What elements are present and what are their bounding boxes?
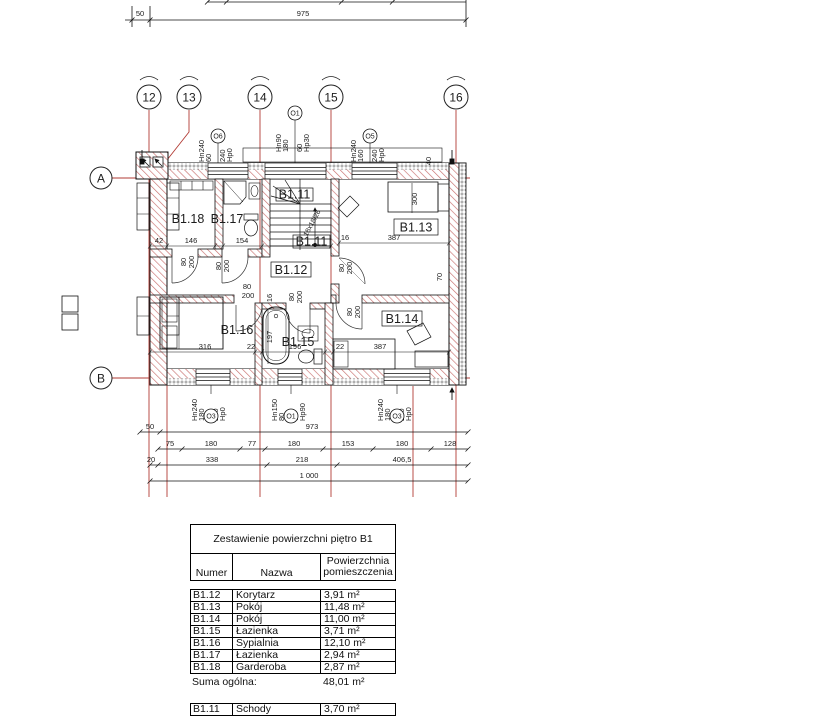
- bdim-r2-4: 153: [342, 439, 355, 448]
- table-header-row: Numer Nazwa Powierzchnia pomieszczenia: [190, 554, 396, 581]
- cell-num: B1.17: [191, 650, 233, 661]
- opening-spec: Hp90: [298, 403, 307, 421]
- bdim-r3-3: 406,5: [393, 455, 412, 464]
- opening-annotations-top: Hn240 60 240 Hp0 O6 Hn90 180 60 Hp30 O1 …: [197, 106, 442, 163]
- cell-name: Garderoba: [233, 662, 321, 673]
- door-h: 200: [295, 291, 304, 304]
- desk-symbol: [415, 351, 448, 367]
- opening-spec: Hp0: [225, 148, 234, 162]
- cell-area: 12,10 m²: [321, 638, 395, 649]
- total-label: Suma ogólna:: [190, 675, 320, 689]
- table-row: B1.13 Pokój 11,48 m²: [190, 601, 396, 614]
- toilet-tank: [244, 214, 258, 220]
- cell-num: B1.13: [191, 602, 233, 613]
- wardrobe-symbol: [170, 181, 213, 190]
- table-total-row: Suma ogólna: 48,01 m²: [190, 675, 396, 689]
- cell-name: Schody: [233, 704, 321, 715]
- opening-o1-top: Hn90 180 60 Hp30 O1: [274, 106, 311, 163]
- opening-o1-bottom: Hn150 80 60 Hp90 O1: [270, 385, 307, 423]
- opening-spec: Hp0: [218, 407, 227, 421]
- bdim-r3-0: 20: [147, 455, 155, 464]
- table-title: Zestawienie powierzchni piętro B1: [190, 524, 396, 554]
- axis-14: 14: [253, 91, 267, 105]
- opening-annotations-bottom: Hn240 180 240 Hp0 O3 Hn150 80 60 Hp90 O1…: [190, 385, 413, 423]
- room-label-b117: B1.17: [211, 212, 244, 226]
- opening-o6: Hn240 60 240 Hp0 O6: [197, 129, 234, 163]
- opening-o3-right: Hn240 180 240 Hp0 O3: [376, 385, 413, 423]
- area-table: Zestawienie powierzchni piętro B1 Numer …: [190, 524, 396, 716]
- bed-symbol: [160, 297, 223, 349]
- opening-spec: 60: [204, 154, 213, 162]
- top-dim-offset: 50: [136, 9, 144, 18]
- cell-area: 3,70 m²: [321, 704, 395, 715]
- bdim-r4: 1 000: [300, 471, 319, 480]
- room-label-b112: B1.12: [271, 262, 311, 277]
- room-label-b116: B1.16: [221, 323, 254, 337]
- dim-70: 70: [435, 273, 444, 281]
- cell-name: Korytarz: [233, 590, 321, 601]
- floor-plan-sheet: 50 975: [0, 0, 821, 720]
- table-body: B1.12 Korytarz 3,91 m² B1.13 Pokój 11,48…: [190, 589, 396, 674]
- cell-area: 11,48 m²: [321, 602, 395, 613]
- dim-22-left: 22: [247, 342, 255, 351]
- interior-walls: [150, 179, 449, 385]
- table-row: B1.18 Garderoba 2,87 m²: [190, 661, 396, 674]
- opening-o5: Hn240 160 240 Hp0 O5: [349, 129, 386, 163]
- floor-plan-drawing: 50 975: [0, 0, 821, 520]
- col-header-numer: Numer: [191, 554, 233, 580]
- window-top-3: [352, 163, 397, 179]
- bdim-r1-offset: 50: [146, 422, 154, 431]
- wardrobe-symbol: [137, 183, 149, 230]
- room-label-b111-lower: B1.11: [293, 235, 330, 249]
- bdim-r2-0: 75: [166, 439, 174, 448]
- opening-spec: 180: [281, 139, 290, 152]
- room-label-b113-text: B1.13: [400, 221, 433, 235]
- window-bottom-2: [278, 369, 302, 385]
- dim-387-bottom: 387: [374, 342, 387, 351]
- table-row: B1.15 Łazienka 3,71 m²: [190, 625, 396, 638]
- dim-300: 300: [410, 193, 419, 206]
- bdim-r1-span: 973: [306, 422, 319, 431]
- bdim-r2-6: 128: [444, 439, 457, 448]
- cell-area: 2,87 m²: [321, 662, 395, 673]
- cell-area: 11,00 m²: [321, 614, 395, 625]
- cell-name: Pokój: [233, 602, 321, 613]
- cell-num: B1.16: [191, 638, 233, 649]
- opening-symbol: O3: [206, 414, 215, 421]
- room-label-b118: B1.18: [172, 212, 205, 226]
- opening-spec: Hp30: [302, 134, 311, 152]
- cell-num: B1.11: [191, 704, 233, 715]
- door-h: 200: [222, 260, 231, 273]
- total-value: 48,01 m²: [320, 675, 396, 689]
- nightstand-symbol: [438, 184, 449, 211]
- cell-area: 3,71 m²: [321, 626, 395, 637]
- opening-spec: Hp0: [404, 407, 413, 421]
- cell-name: Łazienka: [233, 626, 321, 637]
- dim-197: 197: [265, 331, 274, 344]
- dim-16-top: 16: [341, 233, 349, 242]
- room-label-b114-text: B1.14: [386, 312, 419, 326]
- window-top-2: [265, 163, 326, 179]
- cell-name: Sypialnia: [233, 638, 321, 649]
- bdim-r3-1: 338: [206, 455, 219, 464]
- cell-name: Pokój: [233, 614, 321, 625]
- room-label-b115: B1.15: [282, 335, 315, 349]
- bdim-r3-2: 218: [296, 455, 309, 464]
- axis-13: 13: [182, 91, 196, 105]
- opening-symbol: O1: [290, 111, 299, 118]
- opening-spec: Hp0: [377, 148, 386, 162]
- opening-symbol: O1: [286, 414, 295, 421]
- axis-16: 16: [449, 91, 463, 105]
- room-label-b113: B1.13: [394, 219, 438, 235]
- axis-15: 15: [324, 91, 338, 105]
- dim-42: 42: [155, 236, 163, 245]
- stair-note: 18x18/26: [303, 209, 323, 238]
- cell-area: 3,91 m²: [321, 590, 395, 601]
- table-row: B1.16 Sypialnia 12,10 m²: [190, 637, 396, 650]
- dim-316: 316: [199, 342, 212, 351]
- cell-area: 2,94 m²: [321, 650, 395, 661]
- room-label-b111-lower-text: B1.11: [296, 235, 328, 249]
- toilet-tank: [314, 349, 322, 364]
- door-h: 200: [242, 291, 255, 300]
- toilet-symbol: [245, 220, 258, 236]
- stairs-area-row: B1.11 Schody 3,70 m²: [190, 703, 396, 716]
- chair-symbol: [338, 196, 359, 217]
- cell-num: B1.14: [191, 614, 233, 625]
- cell-num: B1.18: [191, 662, 233, 673]
- bdim-r2-3: 180: [288, 439, 301, 448]
- dim-22-right: 22: [336, 342, 344, 351]
- axis-12: 12: [142, 91, 156, 105]
- window-bottom-3: [384, 369, 430, 385]
- room-label-b112-text: B1.12: [275, 263, 308, 277]
- door-w: 80: [243, 282, 251, 291]
- adjacent-unit-fragment: [62, 296, 78, 330]
- table-row: B1.17 Łazienka 2,94 m²: [190, 649, 396, 662]
- window-top-1: [208, 163, 248, 179]
- opening-symbol: O5: [365, 134, 374, 141]
- dim-40: 40: [424, 157, 433, 165]
- top-dim-span: 975: [297, 9, 310, 18]
- chimney: [136, 152, 168, 179]
- opening-o3-left: Hn240 180 240 Hp0 O3: [190, 385, 227, 423]
- room-label-b114: B1.14: [382, 311, 422, 326]
- dim-146: 146: [185, 236, 198, 245]
- table-row: B1.14 Pokój 11,00 m²: [190, 613, 396, 626]
- door-h: 200: [345, 262, 354, 275]
- table-row: B1.12 Korytarz 3,91 m²: [190, 589, 396, 602]
- opening-spec: 160: [356, 149, 365, 162]
- dim-16-corridor: 16: [265, 294, 274, 302]
- col-header-powierzchnia: Powierzchnia pomieszczenia: [321, 554, 395, 580]
- cell-num: B1.15: [191, 626, 233, 637]
- opening-symbol: O3: [392, 414, 401, 421]
- door-h: 200: [353, 306, 362, 319]
- bdim-r2-2: 77: [248, 439, 256, 448]
- cell-name: Łazienka: [233, 650, 321, 661]
- room-label-b111-upper-text: B1.11: [279, 188, 311, 202]
- col-header-nazwa: Nazwa: [233, 554, 321, 580]
- table-row: B1.11 Schody 3,70 m²: [190, 703, 396, 716]
- bdim-r2-1: 180: [205, 439, 218, 448]
- door-h: 200: [187, 256, 196, 269]
- axis-b: B: [97, 372, 105, 386]
- room-label-b111-upper: B1.11: [276, 188, 313, 202]
- axis-a: A: [97, 172, 105, 186]
- window-bottom-1: [196, 369, 230, 385]
- dim-154: 154: [236, 236, 249, 245]
- cell-num: B1.12: [191, 590, 233, 601]
- opening-symbol: O6: [213, 134, 222, 141]
- bdim-r2-5: 180: [396, 439, 409, 448]
